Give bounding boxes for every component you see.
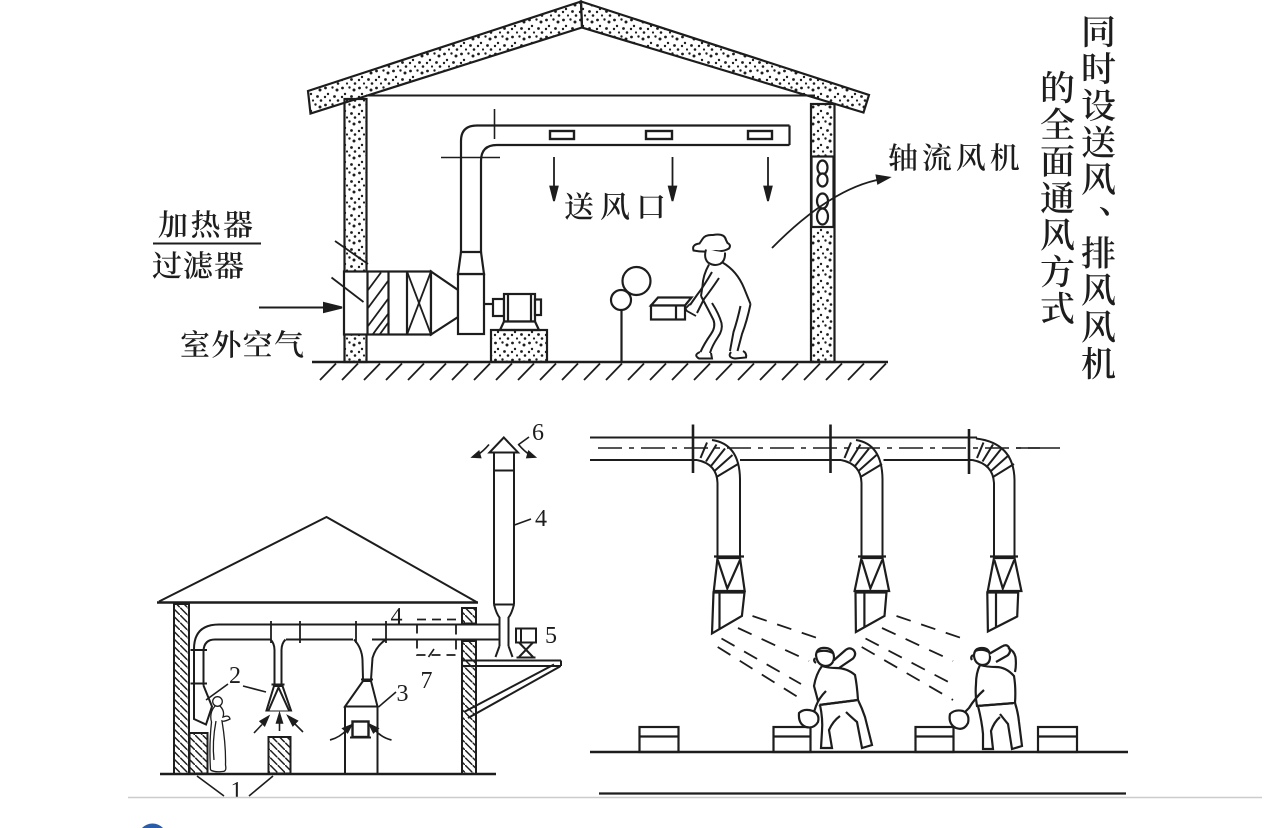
svg-text:4: 4 [535,506,547,532]
svg-text:6: 6 [532,420,544,446]
svg-text:5: 5 [545,623,557,649]
svg-text:1: 1 [231,778,243,804]
svg-text:7: 7 [421,668,433,694]
svg-text:3: 3 [397,681,409,707]
svg-text:2: 2 [229,663,241,689]
svg-text:4: 4 [391,604,403,630]
